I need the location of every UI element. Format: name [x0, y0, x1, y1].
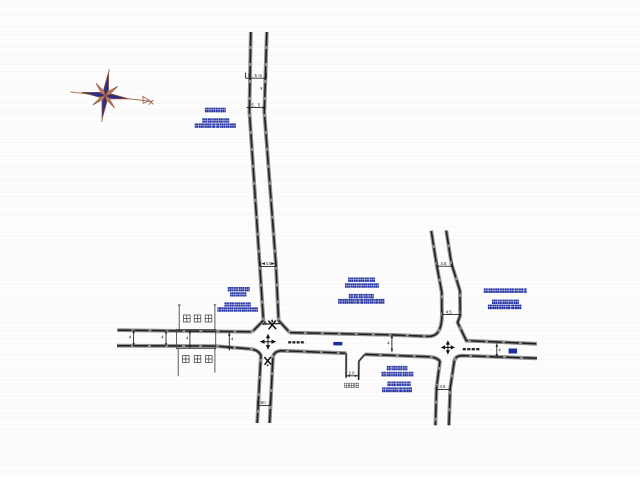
- svg-text:4.5: 4.5: [440, 384, 446, 389]
- svg-text:4.5: 4.5: [446, 309, 452, 314]
- svg-text:5.5m: 5.5m: [248, 73, 263, 78]
- svg-text:2.0: 2.0: [349, 371, 355, 376]
- svg-text:4.5: 4.5: [266, 261, 272, 266]
- svg-text:4.5: 4.5: [441, 261, 447, 266]
- svg-text:5.5: 5.5: [252, 102, 262, 107]
- svg-text:4m: 4m: [260, 400, 266, 405]
